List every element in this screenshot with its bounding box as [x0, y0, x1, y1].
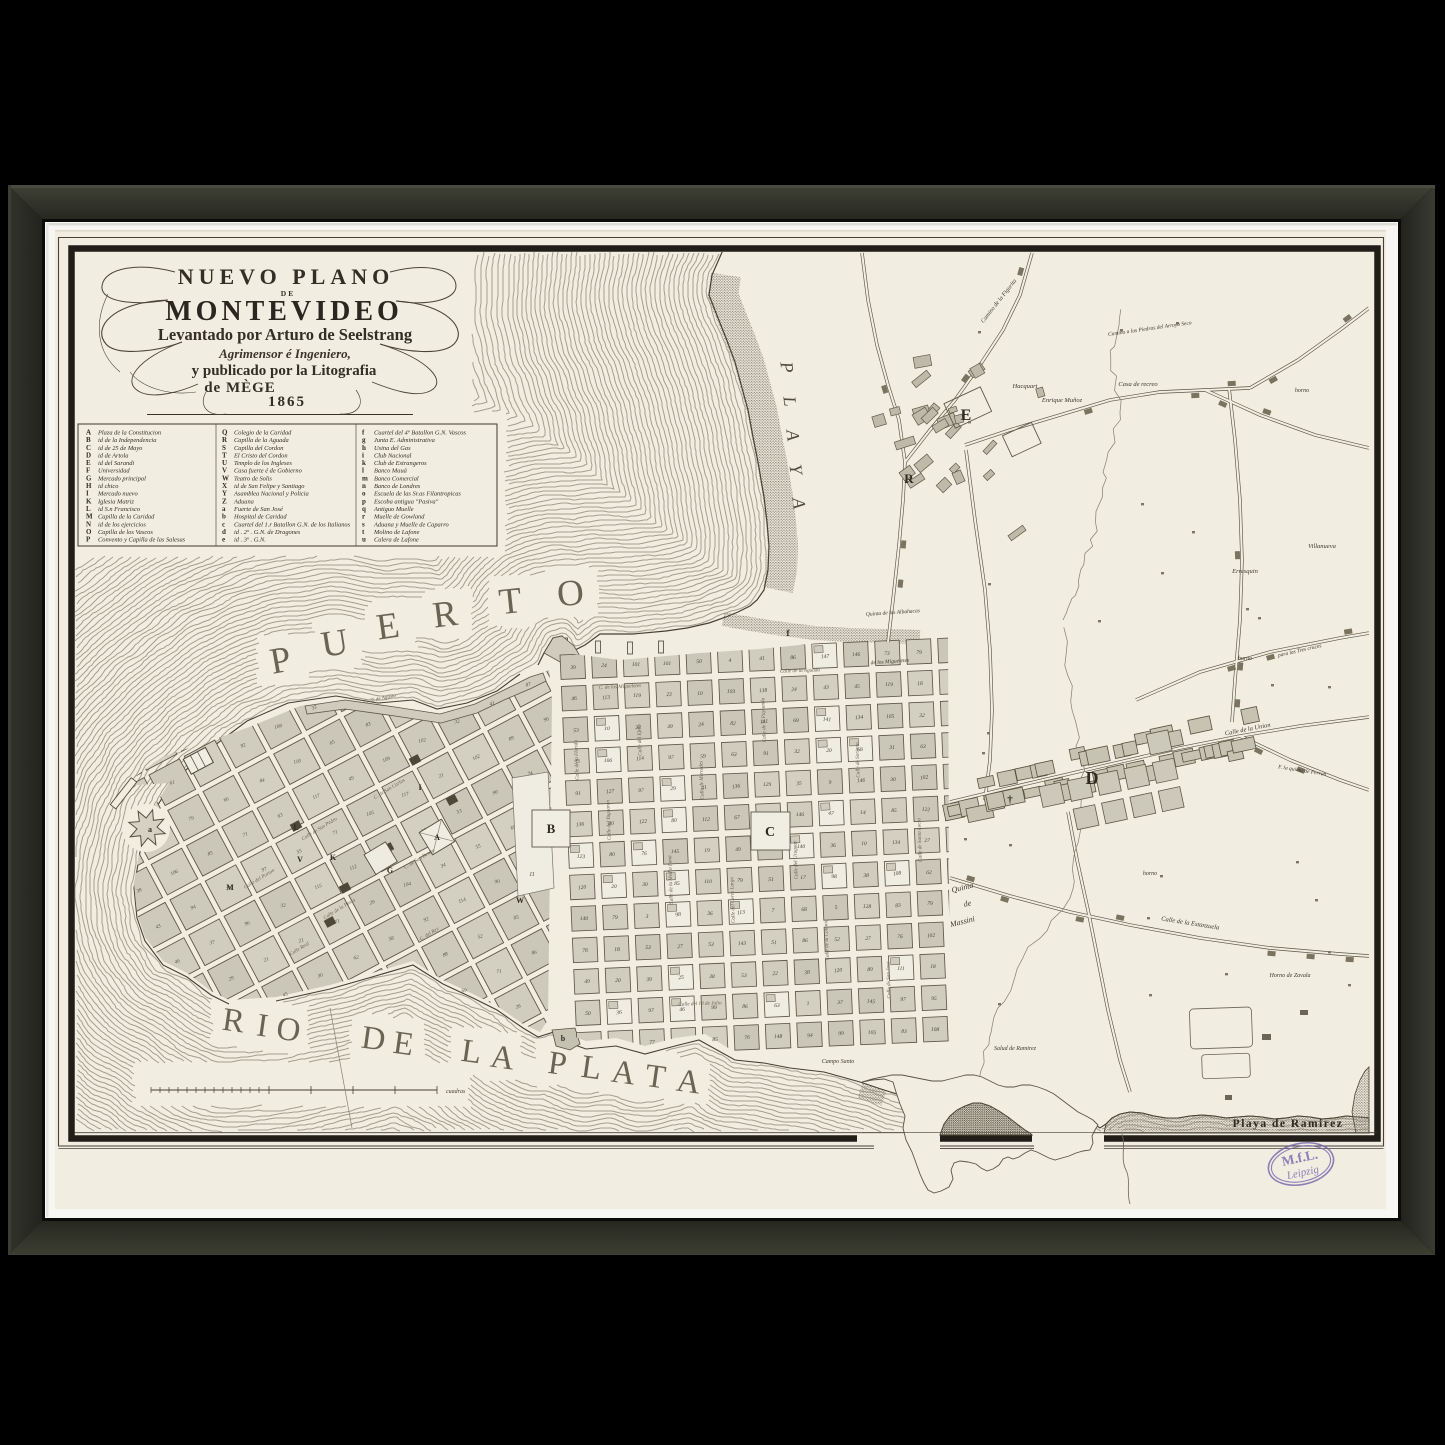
- svg-text:9: 9: [829, 780, 832, 786]
- svg-text:Universidad: Universidad: [98, 468, 130, 475]
- svg-text:G: G: [387, 866, 393, 875]
- svg-text:39: 39: [569, 665, 576, 671]
- svg-text:35: 35: [795, 781, 802, 788]
- svg-text:Convento y Capilla de las Sale: Convento y Capilla de las Salesas: [98, 537, 186, 544]
- svg-text:Calle de Soriano: Calle de Soriano: [854, 742, 861, 778]
- svg-text:101: 101: [632, 662, 641, 668]
- svg-text:86: 86: [742, 1004, 748, 1010]
- svg-text:18: 18: [614, 947, 620, 953]
- svg-text:Campo Santo: Campo Santo: [822, 1059, 855, 1065]
- svg-text:u: u: [362, 536, 366, 544]
- svg-text:20: 20: [611, 884, 617, 890]
- svg-text:63: 63: [920, 744, 926, 750]
- svg-text:T: T: [497, 580, 525, 623]
- svg-text:Casa de recreo: Casa de recreo: [1118, 381, 1158, 388]
- svg-text:Colegio de la Caridad: Colegio de la Caridad: [234, 430, 292, 437]
- svg-text:V: V: [297, 855, 303, 864]
- svg-text:52: 52: [834, 937, 840, 943]
- svg-text:Fuerte de San José: Fuerte de San José: [233, 506, 284, 513]
- svg-text:76: 76: [744, 1035, 750, 1042]
- svg-text:horno: horno: [1143, 871, 1157, 877]
- svg-text:76: 76: [641, 851, 647, 857]
- svg-text:e: e: [222, 536, 225, 544]
- svg-text:Levantado por Arturo de Seelst: Levantado por Arturo de Seelstrang: [158, 325, 413, 344]
- svg-text:127: 127: [606, 789, 615, 796]
- svg-text:102: 102: [927, 933, 936, 940]
- svg-text:P: P: [86, 536, 91, 544]
- svg-text:Calera de Lafone: Calera de Lafone: [374, 537, 419, 544]
- svg-text:113: 113: [602, 695, 611, 702]
- svg-text:41: 41: [759, 655, 765, 662]
- svg-text:91: 91: [575, 791, 581, 797]
- svg-text:Templo de los Ingleses: Templo de los Ingleses: [234, 460, 292, 467]
- svg-text:36: 36: [706, 911, 713, 917]
- svg-text:95: 95: [931, 996, 937, 1002]
- svg-text:id de los ejercicios: id de los ejercicios: [98, 521, 146, 528]
- svg-text:Calle del Ejido: Calle del Ejido: [636, 724, 643, 756]
- svg-text:101: 101: [663, 661, 672, 667]
- svg-text:97: 97: [638, 788, 644, 794]
- svg-text:53: 53: [645, 945, 651, 951]
- svg-text:50: 50: [585, 1011, 591, 1017]
- svg-text:Junta E. Administrativa: Junta E. Administrativa: [374, 437, 435, 444]
- svg-text:3: 3: [644, 914, 648, 920]
- svg-text:K: K: [330, 853, 337, 862]
- svg-text:38: 38: [708, 974, 715, 980]
- svg-text:94: 94: [807, 1032, 813, 1039]
- svg-text:134: 134: [855, 714, 864, 722]
- svg-text:122: 122: [639, 819, 648, 826]
- svg-text:Escuela de las Sr.as Filantrop: Escuela de las Sr.as Filantropicas: [373, 491, 461, 498]
- svg-text:123: 123: [577, 854, 586, 860]
- svg-text:L: L: [293, 823, 298, 832]
- svg-text:43: 43: [823, 684, 829, 692]
- svg-text:49: 49: [584, 978, 590, 985]
- svg-text:Capilla de la Caridad: Capilla de la Caridad: [98, 514, 155, 521]
- svg-text:146: 146: [796, 811, 805, 818]
- svg-text:79: 79: [737, 878, 743, 884]
- svg-text:Banco Mauá: Banco Mauá: [374, 468, 408, 475]
- svg-text:Playa de Ramirez: Playa de Ramirez: [1233, 1118, 1344, 1130]
- svg-text:†: †: [1007, 794, 1013, 806]
- svg-text:b: b: [561, 1034, 566, 1043]
- svg-text:97: 97: [900, 997, 906, 1003]
- svg-text:36: 36: [615, 1010, 622, 1017]
- svg-text:63: 63: [774, 1003, 780, 1009]
- svg-text:49: 49: [735, 846, 741, 853]
- svg-text:27: 27: [924, 838, 930, 844]
- svg-text:de MÈGE: de MÈGE: [204, 379, 276, 396]
- svg-text:horno: horno: [1295, 388, 1309, 394]
- svg-text:68: 68: [801, 907, 807, 914]
- svg-text:122: 122: [922, 807, 931, 813]
- svg-text:29: 29: [670, 786, 676, 792]
- svg-text:O: O: [274, 1011, 303, 1050]
- svg-text:53: 53: [741, 973, 747, 979]
- svg-text:10: 10: [697, 691, 703, 697]
- svg-text:148: 148: [774, 1033, 783, 1040]
- svg-text:Asamblea Nacional y Policia: Asamblea Nacional y Policia: [233, 491, 309, 498]
- svg-text:a: a: [148, 825, 152, 834]
- svg-text:97: 97: [648, 1008, 654, 1014]
- svg-text:Molino de Lafone: Molino de Lafone: [373, 529, 420, 536]
- svg-text:id chico: id chico: [98, 483, 118, 490]
- svg-text:108: 108: [931, 1027, 940, 1033]
- svg-text:23: 23: [666, 692, 672, 698]
- svg-text:143: 143: [738, 940, 747, 947]
- svg-text:Agrimensor é Ingeniero,: Agrimensor é Ingeniero,: [218, 346, 351, 361]
- svg-text:id . 3º . G.N.: id . 3º . G.N.: [234, 537, 266, 544]
- svg-text:Antiguo Muelle: Antiguo Muelle: [373, 506, 414, 513]
- svg-text:79: 79: [916, 650, 922, 656]
- svg-text:129: 129: [763, 782, 772, 788]
- svg-text:24: 24: [791, 686, 797, 693]
- svg-text:O: O: [555, 572, 586, 615]
- svg-text:22: 22: [772, 971, 778, 978]
- svg-text:id . 2º . G.N. de Dra: id . 2º . G.N. de Dragones: [234, 529, 301, 536]
- svg-text:83: 83: [901, 1029, 907, 1035]
- svg-text:Capilla de la Aguada: Capilla de la Aguada: [234, 437, 289, 444]
- svg-text:D: D: [359, 1020, 388, 1059]
- svg-text:24: 24: [601, 662, 607, 669]
- svg-text:19: 19: [704, 848, 710, 854]
- svg-text:M: M: [226, 883, 234, 892]
- svg-text:Capilla del Cordon: Capilla del Cordon: [234, 445, 283, 452]
- svg-text:85: 85: [674, 881, 680, 887]
- svg-text:128: 128: [863, 904, 872, 910]
- svg-text:31: 31: [888, 745, 895, 751]
- svg-text:134: 134: [892, 839, 901, 846]
- svg-text:98: 98: [675, 912, 681, 919]
- svg-text:id de Artola: id de Artola: [98, 452, 128, 459]
- svg-text:R: R: [904, 471, 914, 486]
- svg-text:14: 14: [860, 809, 866, 816]
- svg-text:53: 53: [573, 728, 579, 735]
- svg-text:141: 141: [823, 716, 832, 724]
- svg-text:30: 30: [889, 777, 896, 783]
- svg-text:86: 86: [802, 938, 808, 944]
- svg-text:86: 86: [790, 655, 796, 661]
- svg-text:91: 91: [763, 751, 769, 757]
- svg-text:83: 83: [895, 903, 902, 910]
- svg-text:A: A: [434, 833, 440, 842]
- svg-text:99: 99: [838, 1031, 844, 1038]
- svg-text:id de San Felipe y Santiago: id de San Felipe y Santiago: [234, 483, 304, 490]
- svg-text:D: D: [1086, 768, 1099, 788]
- svg-text:NUEVO PLANO: NUEVO PLANO: [178, 264, 395, 289]
- svg-text:24: 24: [698, 721, 705, 729]
- svg-text:Cuartel del 1.r Batallon G.N.: Cuartel del 1.r Batallon G.N. de los Ita…: [234, 521, 351, 528]
- svg-text:136: 136: [732, 783, 741, 790]
- svg-text:7: 7: [771, 908, 774, 914]
- svg-text:20: 20: [826, 748, 832, 754]
- svg-text:Escoba antigua "Pasiva": Escoba antigua "Pasiva": [373, 498, 439, 505]
- svg-text:49: 49: [667, 723, 673, 730]
- svg-text:45: 45: [854, 683, 860, 690]
- svg-text:120: 120: [834, 967, 843, 974]
- svg-text:Muelle de Gowland: Muelle de Gowland: [373, 514, 425, 521]
- svg-text:47: 47: [828, 810, 834, 817]
- svg-text:Erresquin: Erresquin: [1231, 568, 1258, 575]
- svg-text:51: 51: [768, 877, 774, 883]
- svg-text:Plaza de la Constitucion: Plaza de la Constitucion: [97, 430, 161, 437]
- svg-text:145: 145: [867, 998, 876, 1006]
- svg-text:Villanueva: Villanueva: [1308, 543, 1336, 550]
- svg-text:27: 27: [865, 936, 871, 942]
- svg-text:136: 136: [576, 821, 585, 828]
- svg-text:102: 102: [920, 774, 929, 781]
- svg-text:17: 17: [800, 875, 806, 881]
- svg-text:63: 63: [731, 752, 737, 758]
- svg-text:Capilla de los Vascos: Capilla de los Vascos: [98, 529, 153, 536]
- svg-text:36: 36: [829, 843, 836, 849]
- svg-text:25: 25: [678, 975, 684, 982]
- svg-text:39: 39: [645, 977, 652, 983]
- svg-text:30: 30: [641, 882, 648, 888]
- svg-text:98: 98: [831, 874, 837, 880]
- svg-text:62: 62: [926, 870, 932, 876]
- svg-text:Usina del Gas: Usina del Gas: [374, 445, 411, 452]
- svg-text:82: 82: [730, 721, 736, 727]
- svg-text:79: 79: [927, 901, 933, 907]
- svg-text:108: 108: [893, 870, 902, 877]
- svg-text:y publicado por la Litografia: y publicado por la Litografia: [192, 363, 377, 379]
- svg-text:B: B: [547, 821, 556, 836]
- svg-text:10: 10: [604, 726, 610, 732]
- svg-text:P: P: [776, 360, 797, 374]
- svg-text:id S.n Francisco: id S.n Francisco: [98, 506, 140, 513]
- svg-text:80: 80: [609, 852, 615, 858]
- svg-text:Aduana y Muelle de Caparro: Aduana y Muelle de Caparro: [373, 521, 449, 528]
- svg-text:Salud de Ramirez: Salud de Ramirez: [994, 1046, 1037, 1052]
- svg-text:77: 77: [649, 1040, 655, 1046]
- svg-text:119: 119: [633, 693, 641, 699]
- svg-text:1865: 1865: [268, 394, 306, 410]
- svg-text:Aduana: Aduana: [233, 498, 254, 505]
- svg-text:10: 10: [861, 841, 867, 847]
- svg-text:147: 147: [821, 653, 830, 660]
- svg-text:103: 103: [727, 689, 736, 695]
- svg-text:R: R: [430, 593, 460, 637]
- svg-text:106: 106: [604, 758, 613, 764]
- svg-text:76: 76: [897, 934, 903, 940]
- svg-text:67: 67: [734, 815, 740, 821]
- svg-text:112: 112: [702, 817, 710, 823]
- svg-text:78: 78: [582, 948, 589, 955]
- svg-text:Casa fuerte é de Gobierno: Casa fuerte é de Gobierno: [234, 468, 302, 475]
- svg-text:113: 113: [737, 910, 746, 917]
- svg-text:Teatro de Solis: Teatro de Solis: [234, 475, 272, 482]
- svg-text:W: W: [516, 896, 524, 905]
- svg-text:79: 79: [612, 915, 618, 921]
- svg-text:50: 50: [696, 659, 702, 665]
- svg-text:horno: horno: [1238, 656, 1252, 662]
- svg-text:Banco Comercial: Banco Comercial: [374, 475, 419, 482]
- svg-text:85: 85: [891, 808, 897, 814]
- svg-text:89: 89: [867, 967, 873, 973]
- svg-text:Enrique Muñoz: Enrique Muñoz: [1041, 397, 1083, 404]
- svg-text:32: 32: [918, 713, 925, 719]
- svg-text:69: 69: [793, 718, 799, 724]
- svg-text:Iglesia Matriz: Iglesia Matriz: [97, 498, 135, 505]
- svg-text:Club Nacional: Club Nacional: [374, 452, 412, 459]
- svg-text:146: 146: [852, 651, 861, 658]
- svg-text:18: 18: [930, 964, 936, 970]
- svg-text:119: 119: [885, 682, 893, 688]
- svg-text:51: 51: [771, 940, 777, 946]
- svg-text:Mercado principal: Mercado principal: [97, 475, 146, 482]
- svg-text:id de la Independencia: id de la Independencia: [98, 437, 156, 444]
- svg-text:105: 105: [868, 1030, 877, 1037]
- svg-text:145: 145: [671, 848, 680, 855]
- svg-text:Club de Estrangeros: Club de Estrangeros: [374, 460, 427, 467]
- svg-text:Hacquart: Hacquart: [1012, 383, 1038, 390]
- svg-text:MONTEVIDEO: MONTEVIDEO: [165, 296, 403, 327]
- svg-text:E: E: [961, 407, 972, 424]
- svg-text:97: 97: [668, 755, 674, 761]
- svg-text:Horno de Zavala: Horno de Zavala: [1269, 973, 1311, 979]
- svg-text:id del Sarandi: id del Sarandi: [98, 460, 134, 467]
- svg-text:18: 18: [917, 681, 923, 687]
- svg-text:El Cristo del Cordon: El Cristo del Cordon: [233, 452, 288, 459]
- svg-text:111: 111: [897, 966, 905, 972]
- svg-text:105: 105: [886, 714, 895, 720]
- svg-text:I: I: [418, 783, 421, 792]
- svg-text:53: 53: [708, 942, 714, 948]
- svg-text:Cuartel del 4º Batallon G.N. V: Cuartel del 4º Batallon G.N. Vascos: [374, 430, 466, 437]
- svg-text:11: 11: [529, 872, 535, 878]
- svg-text:37: 37: [836, 1000, 843, 1006]
- svg-text:120: 120: [578, 884, 587, 891]
- svg-text:85: 85: [712, 1037, 718, 1043]
- svg-text:Banco de Londres: Banco de Londres: [374, 483, 421, 490]
- svg-text:id de 25 de Mayo: id de 25 de Mayo: [98, 445, 142, 452]
- svg-text:20: 20: [615, 978, 621, 984]
- svg-text:110: 110: [704, 879, 712, 885]
- svg-text:38: 38: [803, 970, 810, 977]
- svg-text:38: 38: [862, 873, 869, 879]
- svg-text:59: 59: [700, 754, 707, 761]
- svg-text:Mercado nuevo: Mercado nuevo: [97, 491, 138, 498]
- svg-text:32: 32: [793, 749, 800, 755]
- svg-text:Hospital de Caridad: Hospital de Caridad: [233, 514, 287, 521]
- svg-text:138: 138: [759, 688, 768, 695]
- svg-text:73: 73: [884, 651, 890, 657]
- svg-text:27: 27: [677, 944, 683, 951]
- svg-text:80: 80: [671, 818, 677, 824]
- svg-text:140: 140: [580, 915, 589, 922]
- svg-text:cuadras: cuadras: [446, 1089, 466, 1095]
- svg-text:C: C: [765, 825, 775, 840]
